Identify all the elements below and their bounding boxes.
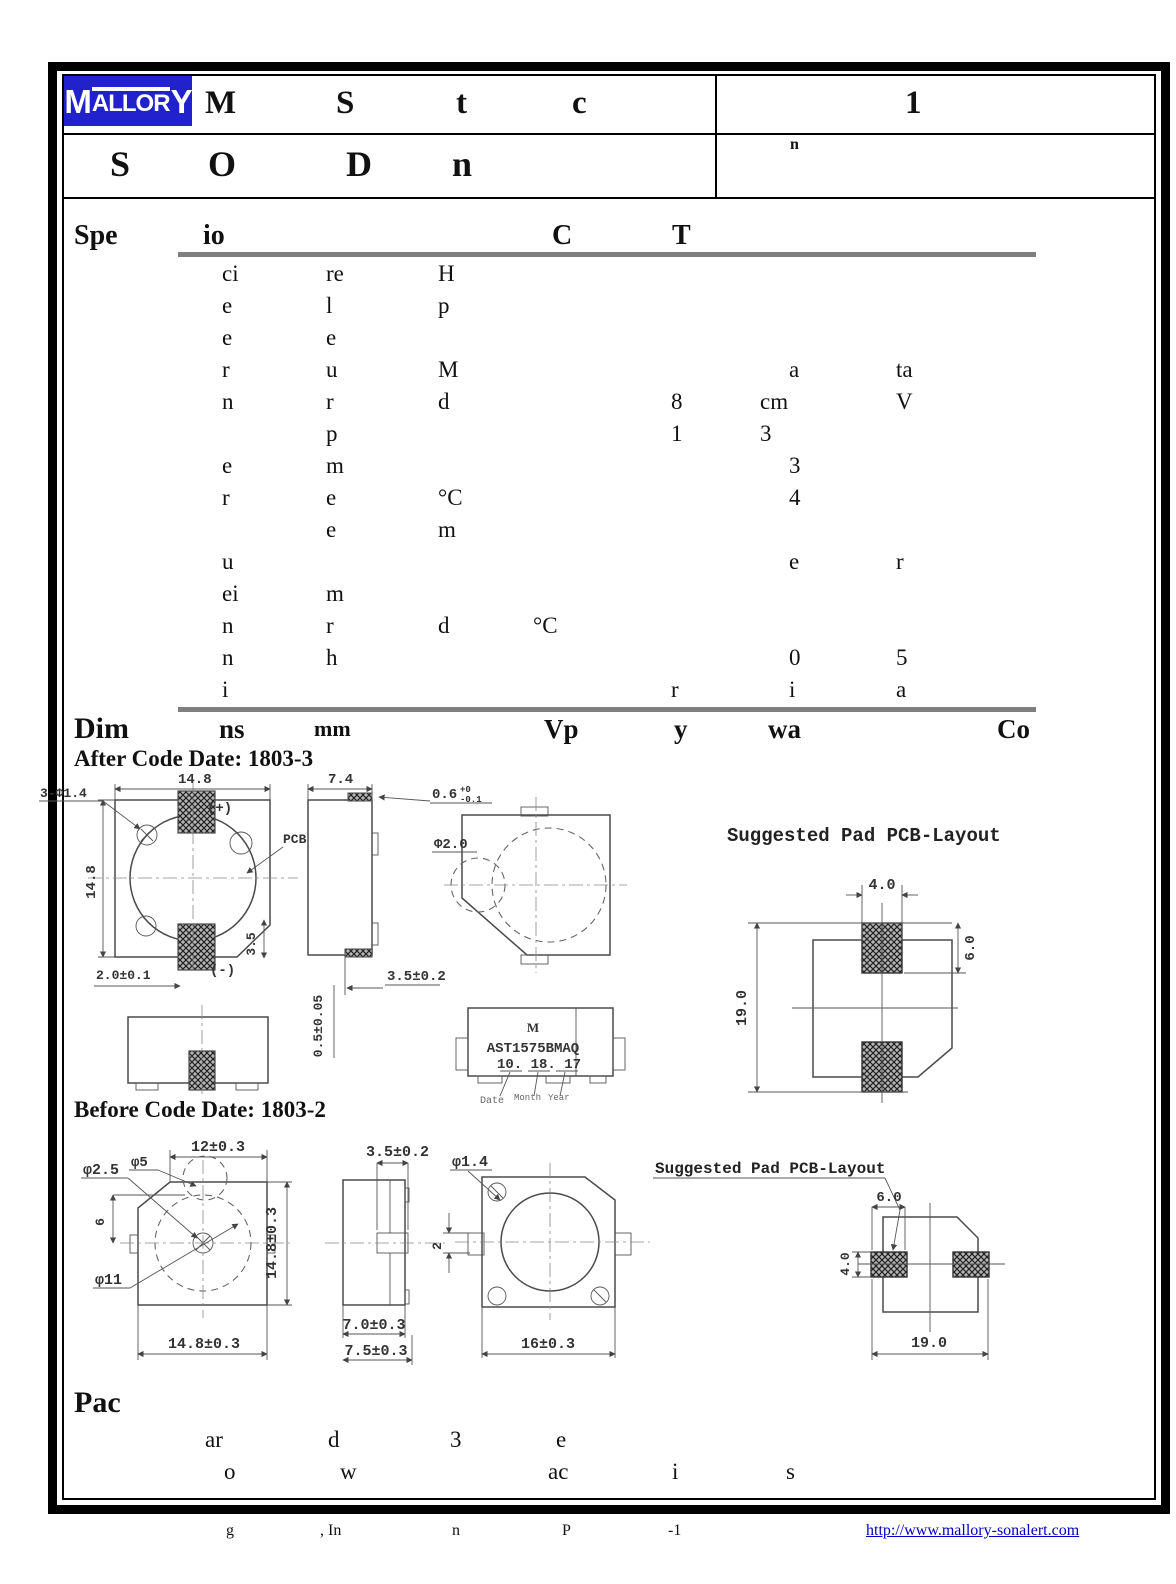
before-side-top-dim: 3.5±0.2 (366, 1144, 429, 1161)
title-fragment: t (456, 76, 467, 130)
website-link[interactable]: http://www.mallory-sonalert.com (866, 1522, 1079, 1540)
dim-heading-fragment: Dim (74, 712, 129, 746)
mallory-logo: M ALLOR Y (64, 76, 192, 126)
packaging-fragment: ar (205, 1427, 223, 1453)
packaging-fragment: w (340, 1459, 357, 1485)
footer-fragment: n (452, 1522, 460, 1540)
after-back-dia-label: Φ2.0 (434, 837, 468, 853)
before-back-view: φ1.4 2 16±0.3 (430, 1154, 650, 1358)
spec-cell: n (222, 611, 234, 641)
dim-heading-fragment: Vp (544, 712, 579, 746)
spec-cell: M (438, 355, 458, 385)
dim-heading-fragment: Co (997, 712, 1030, 746)
spec-cell: °C (438, 483, 463, 513)
spec-cell: r (222, 355, 230, 385)
subtitle-fragment: n (452, 134, 472, 194)
spec-top-rule (178, 252, 1036, 257)
after-pad-width-label: 4.0 (868, 877, 895, 894)
datasheet-page: M ALLOR Y M S t c 1 S O D n n Spe io C T… (0, 0, 1176, 1584)
title-fragment: S (336, 76, 354, 130)
before-side-bottom-dim2: 7.5±0.3 (344, 1343, 407, 1360)
spec-cell: r (326, 387, 334, 417)
spec-cell: 5 (896, 643, 908, 673)
dim-heading-fragment: ns (219, 712, 245, 746)
after-top-holes-label: 3-Φ1.4 (40, 786, 87, 801)
superscript-fragment: n (790, 136, 799, 154)
packaging-fragment: o (224, 1459, 236, 1485)
subtitle-fragment: S (110, 134, 130, 194)
spec-cell: n (222, 643, 234, 673)
before-front-top-dim: 12±0.3 (191, 1139, 245, 1156)
dim-heading-fragment: mm (314, 712, 351, 746)
before-front-offset-dim: 6 (93, 1218, 108, 1226)
before-front-bottom-dim: 14.8±0.3 (168, 1336, 240, 1353)
spec-cell: e (789, 547, 799, 577)
after-top-pcb-label: PCB (283, 832, 307, 847)
spec-cell: e (222, 291, 232, 321)
subtitle-fragment: D (346, 134, 372, 194)
spec-cell: n (222, 387, 234, 417)
spec-cell: ci (222, 259, 239, 289)
packaging-fragment: e (556, 1427, 566, 1453)
after-side-tab-tol-up: +0 (460, 785, 471, 795)
spec-cell: e (326, 483, 336, 513)
after-side-width-label: 7.4 (328, 772, 353, 788)
spec-cell: m (438, 515, 456, 545)
before-front-right-dim: 14.8±0.3 (264, 1207, 281, 1279)
after-code-date-label: After Code Date: 1803-3 (74, 746, 313, 772)
before-front-dia1-label: φ2.5 (83, 1162, 119, 1179)
before-pad-layout: Suggested Pad PCB-Layout 6.0 4.0 19.0 (653, 1160, 1005, 1360)
title-fragment: c (572, 76, 587, 130)
spec-cell: r (326, 611, 334, 641)
logo-text-first: M (64, 85, 91, 118)
spec-cell: r (896, 547, 904, 577)
marking-month-label: Month (514, 1093, 541, 1103)
logo-text-middle: ALLOR (92, 87, 170, 116)
dim-heading-fragment: wa (768, 712, 801, 746)
spec-cell: i (222, 675, 228, 705)
spec-row: e m 3 (0, 451, 1176, 481)
packaging-heading: Pac (74, 1386, 121, 1420)
marking-year-label: Year (548, 1093, 570, 1103)
footer-fragment: , In (320, 1522, 341, 1540)
after-top-chamfer-label: 3.5 (244, 932, 259, 956)
subtitle-fragment: O (208, 134, 236, 194)
spec-row: e l p (0, 291, 1176, 321)
spec-row: n r d 8 cm V (0, 387, 1176, 417)
marking-date-label: Date (480, 1096, 504, 1105)
before-front-view: 12±0.3 φ2.5 φ5 6 φ11 14.8±0.3 14.8±0.3 (81, 1139, 292, 1360)
after-side-foot-label: 3.5±0.2 (387, 969, 446, 985)
before-pad-width-label: 6.0 (876, 1190, 901, 1206)
spec-cell: e (326, 515, 336, 545)
after-top-pad-dim-label: 2.0±0.1 (96, 968, 151, 983)
after-pad-layout-title: Suggested Pad PCB-Layout (727, 825, 1001, 847)
footer-fragment: g (226, 1522, 234, 1540)
spec-heading-fragment: Spe (74, 218, 118, 254)
spec-cell: h (326, 643, 338, 673)
after-side-thickness-label: 0.5±0.05 (311, 995, 326, 1058)
after-bottom-view (128, 1005, 268, 1098)
spec-cell: r (671, 675, 679, 705)
spec-row: u e r (0, 547, 1176, 577)
spec-cell: °C (533, 611, 558, 641)
spec-cell: u (326, 355, 338, 385)
packaging-fragment: s (786, 1459, 795, 1485)
packaging-fragment: ac (548, 1459, 568, 1485)
before-pad-layout-title: Suggested Pad PCB-Layout (655, 1160, 885, 1178)
spec-cell: m (326, 579, 344, 609)
before-pad-height-label: 4.0 (838, 1252, 853, 1276)
after-top-height-label: 14.8 (84, 865, 100, 899)
spec-row: p 1 3 (0, 419, 1176, 449)
after-side-tab-tol-dn: -0.1 (460, 795, 482, 805)
title-fragment: M (205, 76, 236, 130)
page-number-fragment: 1 (905, 76, 922, 130)
header-bottom-line (64, 197, 1154, 199)
spec-row: e m (0, 515, 1176, 545)
dim-heading-fragment: y (674, 712, 688, 746)
spec-cell: m (326, 451, 344, 481)
after-top-width-label: 14.8 (178, 772, 212, 788)
spec-row: ei m (0, 579, 1176, 609)
before-side-view: 3.5±0.2 7.0±0.3 7.5±0.3 (325, 1144, 445, 1365)
packaging-fragment: i (672, 1459, 678, 1485)
after-side-tab-label: 0.6 (432, 787, 457, 803)
spec-cell: 3 (760, 419, 772, 449)
before-back-dia-label: φ1.4 (452, 1154, 488, 1171)
footer-fragment: P (562, 1522, 571, 1540)
spec-cell: re (326, 259, 344, 289)
spec-cell: 0 (789, 643, 801, 673)
spec-cell: r (222, 483, 230, 513)
spec-row: r e °C 4 (0, 483, 1176, 513)
spec-heading-fragment: T (672, 218, 691, 254)
logo-text-last: Y (171, 85, 192, 118)
footer-fragment: -1 (668, 1522, 681, 1540)
spec-cell: e (222, 451, 232, 481)
spec-cell: i (789, 675, 795, 705)
before-front-dia2-label: φ5 (131, 1155, 148, 1171)
after-back-view: Φ2.0 (432, 797, 627, 973)
spec-row: i r i a (0, 675, 1176, 705)
after-pad-layout: Suggested Pad PCB-Layout 4.0 19.0 6.0 (727, 825, 1001, 1103)
packaging-fragment: d (328, 1427, 340, 1453)
spec-bottom-rule (178, 707, 1036, 712)
spec-cell: a (789, 355, 799, 385)
before-code-date-drawing: 12±0.3 φ2.5 φ5 6 φ11 14.8±0.3 14.8±0.3 (35, 1135, 1045, 1370)
spec-cell: a (896, 675, 906, 705)
header-column-divider (715, 76, 717, 199)
after-pad-span-label: 19.0 (734, 990, 751, 1026)
before-code-date-label: Before Code Date: 1803-2 (74, 1097, 326, 1123)
spec-cell: d (438, 387, 450, 417)
after-code-date-drawing: 14.8 14.8 3-Φ1.4 (+) (-) PCB 2.0±0.1 3.5 (35, 770, 1045, 1105)
spec-cell: e (326, 323, 336, 353)
after-marking-view: M AST1575BMAQ 10. 18. 17 Date Month Year (456, 1008, 625, 1105)
packaging-fragment: 3 (450, 1427, 462, 1453)
before-side-bottom-dim1: 7.0±0.3 (342, 1317, 405, 1334)
spec-cell: ei (222, 579, 239, 609)
before-pad-span-label: 19.0 (911, 1335, 947, 1352)
before-back-bottom-dim: 16±0.3 (521, 1336, 575, 1353)
spec-row: r u M a ta (0, 355, 1176, 385)
spec-cell: 3 (789, 451, 801, 481)
spec-row: n h 0 5 (0, 643, 1176, 673)
spec-cell: V (896, 387, 913, 417)
spec-cell: p (326, 419, 338, 449)
spec-cell: p (438, 291, 450, 321)
after-pad-height-label: 6.0 (963, 935, 979, 960)
marking-brand-glyph: M (527, 1020, 539, 1035)
spec-cell: cm (760, 387, 788, 417)
before-back-tab-dim: 2 (430, 1242, 445, 1250)
marking-part-number: AST1575BMAQ (487, 1041, 579, 1057)
spec-cell: 8 (671, 387, 683, 417)
spec-cell: e (222, 323, 232, 353)
after-top-plus-label: (+) (207, 801, 232, 817)
spec-row: e e (0, 323, 1176, 353)
spec-cell: u (222, 547, 234, 577)
spec-row: ci re H (0, 259, 1176, 289)
after-top-view: 14.8 14.8 3-Φ1.4 (+) (-) PCB 2.0±0.1 3.5 (39, 772, 307, 986)
after-top-minus-label: (-) (210, 963, 235, 979)
spec-cell: 4 (789, 483, 801, 513)
spec-cell: H (438, 259, 455, 289)
spec-heading-fragment: io (203, 218, 225, 254)
before-front-dia3-label: φ11 (95, 1272, 122, 1289)
spec-heading-fragment: C (552, 218, 572, 254)
spec-cell: ta (896, 355, 913, 385)
spec-cell: d (438, 611, 450, 641)
spec-cell: 1 (671, 419, 683, 449)
spec-row: n r d °C (0, 611, 1176, 641)
spec-cell: l (326, 291, 332, 321)
